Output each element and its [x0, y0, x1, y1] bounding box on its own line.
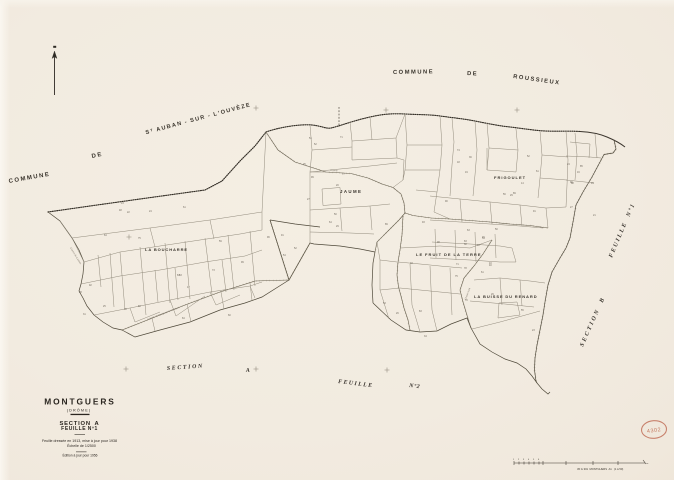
svg-text:FRIGOULET: FRIGOULET — [494, 175, 526, 180]
svg-text:JAUME: JAUME — [340, 189, 362, 194]
svg-text:Échelle de 1/2500: Échelle de 1/2500 — [67, 443, 96, 448]
svg-text:LE FRUIT DE LA TERRE: LE FRUIT DE LA TERRE — [416, 252, 482, 257]
svg-text:45 G 301 MONTGUERS A1 (1 à: 45 G 301 MONTGUERS A1 (1 à 50) — [577, 467, 623, 471]
svg-text:Feuille dressée en 1913, mise: Feuille dressée en 1913, mise à jour pou… — [42, 439, 117, 443]
svg-text:DE: DE — [467, 71, 478, 78]
svg-text:MONTGUERS: MONTGUERS — [44, 397, 116, 407]
svg-text:COMMUNE: COMMUNE — [393, 69, 434, 76]
svg-text:(DRÔME): (DRÔME) — [67, 408, 92, 413]
svg-text:m: m — [647, 463, 649, 465]
svg-text:Chemin: Chemin — [330, 170, 338, 172]
svg-text:LA BUISSE DU RENARD: LA BUISSE DU RENARD — [474, 294, 538, 299]
svg-text:Édition à jour pour 1956: Édition à jour pour 1956 — [62, 452, 97, 457]
svg-text:LA BOUCHARRE: LA BOUCHARRE — [145, 247, 188, 252]
svg-text:FEUILLE Nº1: FEUILLE Nº1 — [61, 426, 98, 432]
svg-text:A: A — [245, 368, 252, 374]
